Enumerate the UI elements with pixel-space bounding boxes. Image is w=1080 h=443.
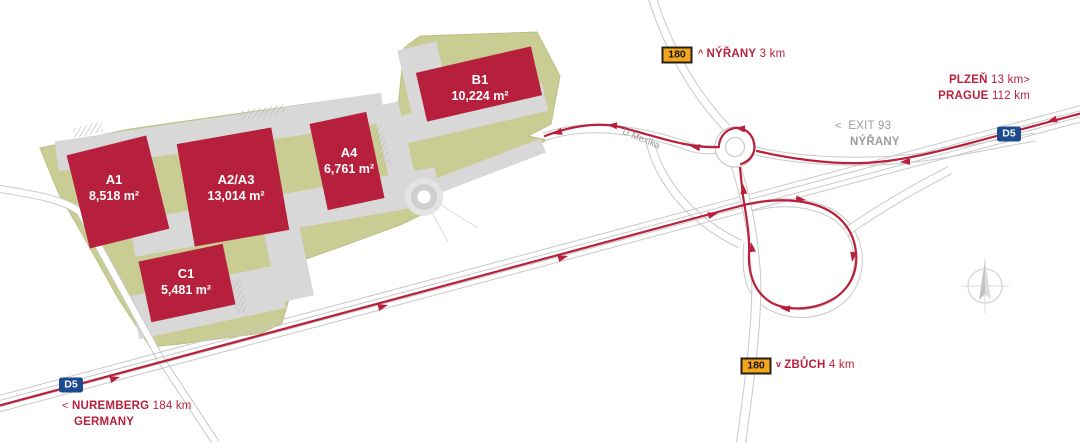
route-180-north-road [651,0,727,128]
building-area: 13,014 m² [208,188,265,205]
map-graphics [0,0,1080,443]
route-number: 180 [668,50,686,61]
destination-distance: 13 km [991,74,1023,86]
right-chevron-icon: > [1023,74,1030,86]
motorway-number: D5 [64,380,77,391]
building-name: C1 [161,265,211,282]
route-180-badge-north: 180 [662,47,693,64]
building-a2a3-label: A2/A3 13,014 m² [208,171,265,205]
building-name: A1 [89,171,139,188]
building-b1-label: B1 10,224 m² [452,71,509,105]
building-name: B1 [452,71,509,88]
destination-country: GERMANY [74,414,192,430]
direction-zbuch: vZBŮCH 4 km [776,359,855,371]
left-chevron-icon: < [62,400,69,412]
d5-badge-east: D5 [997,127,1021,142]
compass-icon [961,259,1009,313]
destination-name: ZBŮCH [784,359,825,371]
loop-ramp [742,170,950,313]
destination-distance: 4 km [829,359,855,371]
exit-title: EXIT 93 [848,120,891,132]
destination-name: PLZEŇ [949,74,988,86]
site-access-map: A1 8,518 m² A2/A3 13,014 m² A4 6,761 m² … [0,0,1080,443]
building-area: 8,518 m² [89,188,139,205]
destination-name: NÝŘANY [706,48,756,60]
building-area: 5,481 m² [161,282,211,299]
building-area: 10,224 m² [452,88,509,105]
destination-name: NUREMBERG [72,400,149,412]
building-name: A4 [324,144,374,161]
up-caret-icon: ^ [698,48,703,58]
motorway-number: D5 [1002,129,1015,140]
direction-nyrany-road: ^NÝŘANY 3 km [698,48,785,60]
building-a4-label: A4 6,761 m² [324,144,374,178]
destination-distance: 112 km [992,90,1030,102]
destination-distance: 3 km [760,48,786,60]
direction-plzen-prague: PLZEŇ 13 km> PRAGUE 112 km [938,72,1030,104]
building-area: 6,761 m² [324,161,374,178]
direction-prague-line: PRAGUE 112 km [938,88,1030,104]
route-number: 180 [747,361,765,372]
route-180-badge-south: 180 [741,358,772,375]
building-a1-label: A1 8,518 m² [89,171,139,205]
d5-badge-west: D5 [59,378,83,393]
destination-name: PRAGUE [938,90,988,102]
destination-distance: 184 km [153,400,192,412]
building-c1-label: C1 5,481 m² [161,265,211,299]
direction-nuremberg: < NUREMBERG 184 km GERMANY [62,398,192,430]
building-name: A2/A3 [208,171,265,188]
left-chevron-icon: < [835,120,842,132]
exit-93-label: < EXIT 93 NÝŘANY [835,119,900,150]
down-caret-icon: v [776,359,781,369]
exit-subtitle: NÝŘANY [850,135,900,151]
